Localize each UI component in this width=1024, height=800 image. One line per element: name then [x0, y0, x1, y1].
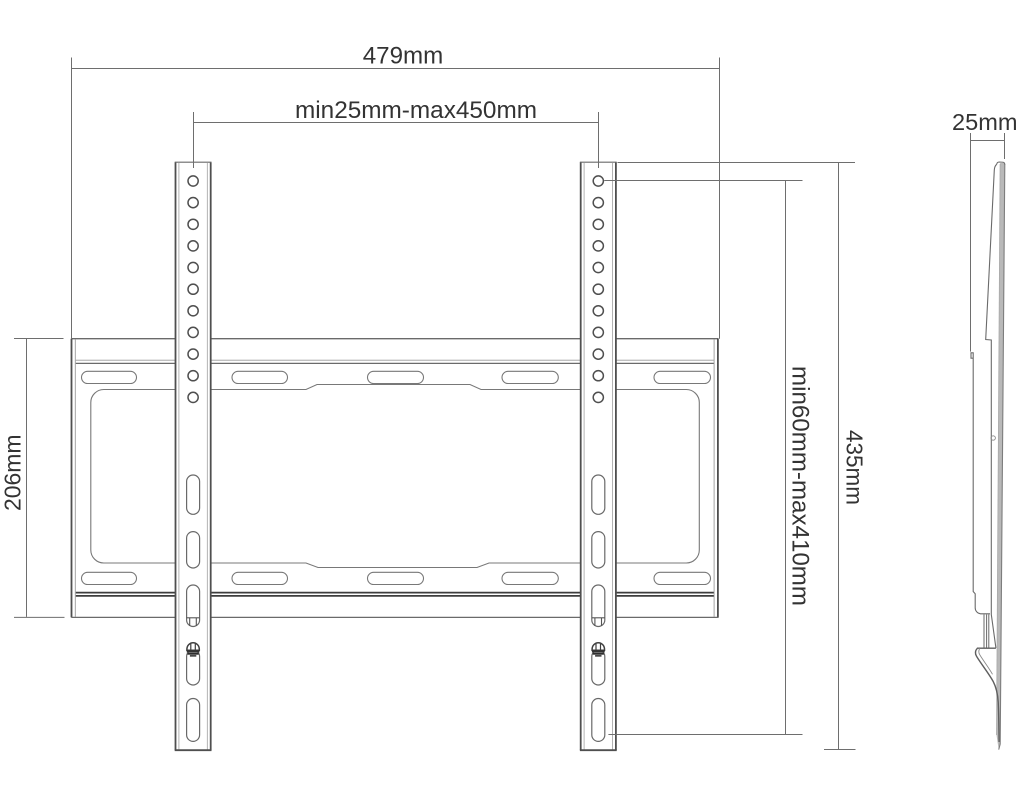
svg-text:min25mm-max450mm: min25mm-max450mm	[295, 97, 537, 124]
svg-text:435mm: 435mm	[842, 430, 868, 505]
svg-text:206mm: 206mm	[0, 435, 26, 512]
svg-text:min60mm-max410mm: min60mm-max410mm	[787, 366, 814, 606]
svg-text:25mm: 25mm	[952, 109, 1018, 135]
svg-text:479mm: 479mm	[363, 43, 444, 70]
